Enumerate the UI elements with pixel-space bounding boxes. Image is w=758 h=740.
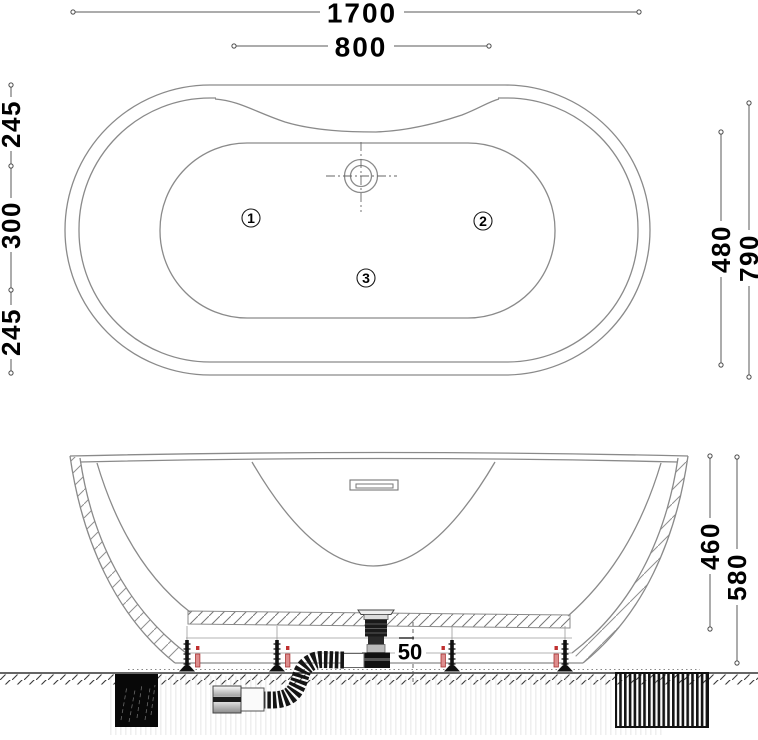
dim-label-580: 580 (722, 553, 752, 601)
dim-label-790: 790 (734, 234, 758, 282)
technical-drawing: 1 2 3 1700 800 245 300 245 (0, 0, 758, 740)
jet-marker-1: 1 (242, 209, 260, 227)
rim-top-inner (80, 459, 678, 463)
top-view: 1 2 3 (65, 85, 650, 375)
foot-marker (196, 646, 200, 667)
dim-label-1700: 1700 (327, 0, 397, 29)
drain-flange (358, 610, 394, 615)
dimension-left-chain: 245 300 245 (0, 83, 26, 375)
dim-label-480: 480 (706, 225, 736, 273)
foot-marker (441, 646, 445, 667)
dim-label-800: 800 (335, 32, 388, 63)
rim-dip-mask (216, 96, 498, 101)
basin-outline (160, 143, 555, 318)
jet-label: 3 (362, 270, 370, 286)
ground (0, 670, 758, 736)
jet-label: 2 (479, 213, 487, 229)
bowl-wall-right (568, 463, 661, 616)
basin-far-wall-arc (252, 462, 495, 566)
ground-block-left (115, 674, 158, 727)
foot-marker (286, 646, 290, 667)
drain-top-view (326, 142, 397, 212)
rim-top-outer (70, 453, 688, 457)
drain-body-lower (368, 637, 384, 645)
bowl-wall-left (97, 463, 190, 612)
jet-label: 1 (247, 210, 255, 226)
bathtub-outer-rim-outline (65, 85, 650, 375)
hose-coupling (241, 688, 264, 711)
foot-marker (554, 646, 558, 667)
drain-outlet-pipe (343, 654, 364, 668)
drain-collar-light (367, 645, 385, 653)
backrest-dip-curve (215, 99, 499, 132)
dim-label-245-bottom: 245 (0, 308, 26, 356)
dimension-basin-depth: 460 (695, 454, 725, 631)
overflow-slot (350, 480, 398, 490)
ground-block-right (616, 673, 708, 727)
dim-label-460: 460 (695, 522, 725, 570)
dimension-basin-width: 480 (706, 130, 736, 367)
wall-section-right (572, 456, 688, 663)
dimension-overall-height: 580 (722, 455, 752, 665)
dimension-overall-width: 790 (734, 101, 758, 379)
dimension-backrest-width: 800 (232, 32, 491, 63)
ground-shading (108, 676, 663, 735)
dim-label-50: 50 (398, 640, 422, 665)
dim-label-245-top: 245 (0, 100, 26, 148)
jet-marker-2: 2 (474, 212, 492, 230)
dim-label-300: 300 (0, 201, 26, 249)
leveling-foot (444, 640, 460, 672)
wall-section-left (70, 456, 186, 663)
jet-marker-3: 3 (357, 269, 375, 287)
leveling-foot (269, 640, 285, 672)
dimension-overall-length: 1700 (71, 0, 641, 29)
drain-neck (364, 615, 388, 620)
bathtub-inner-rim-outline (79, 98, 638, 362)
leveling-foot (557, 640, 573, 672)
